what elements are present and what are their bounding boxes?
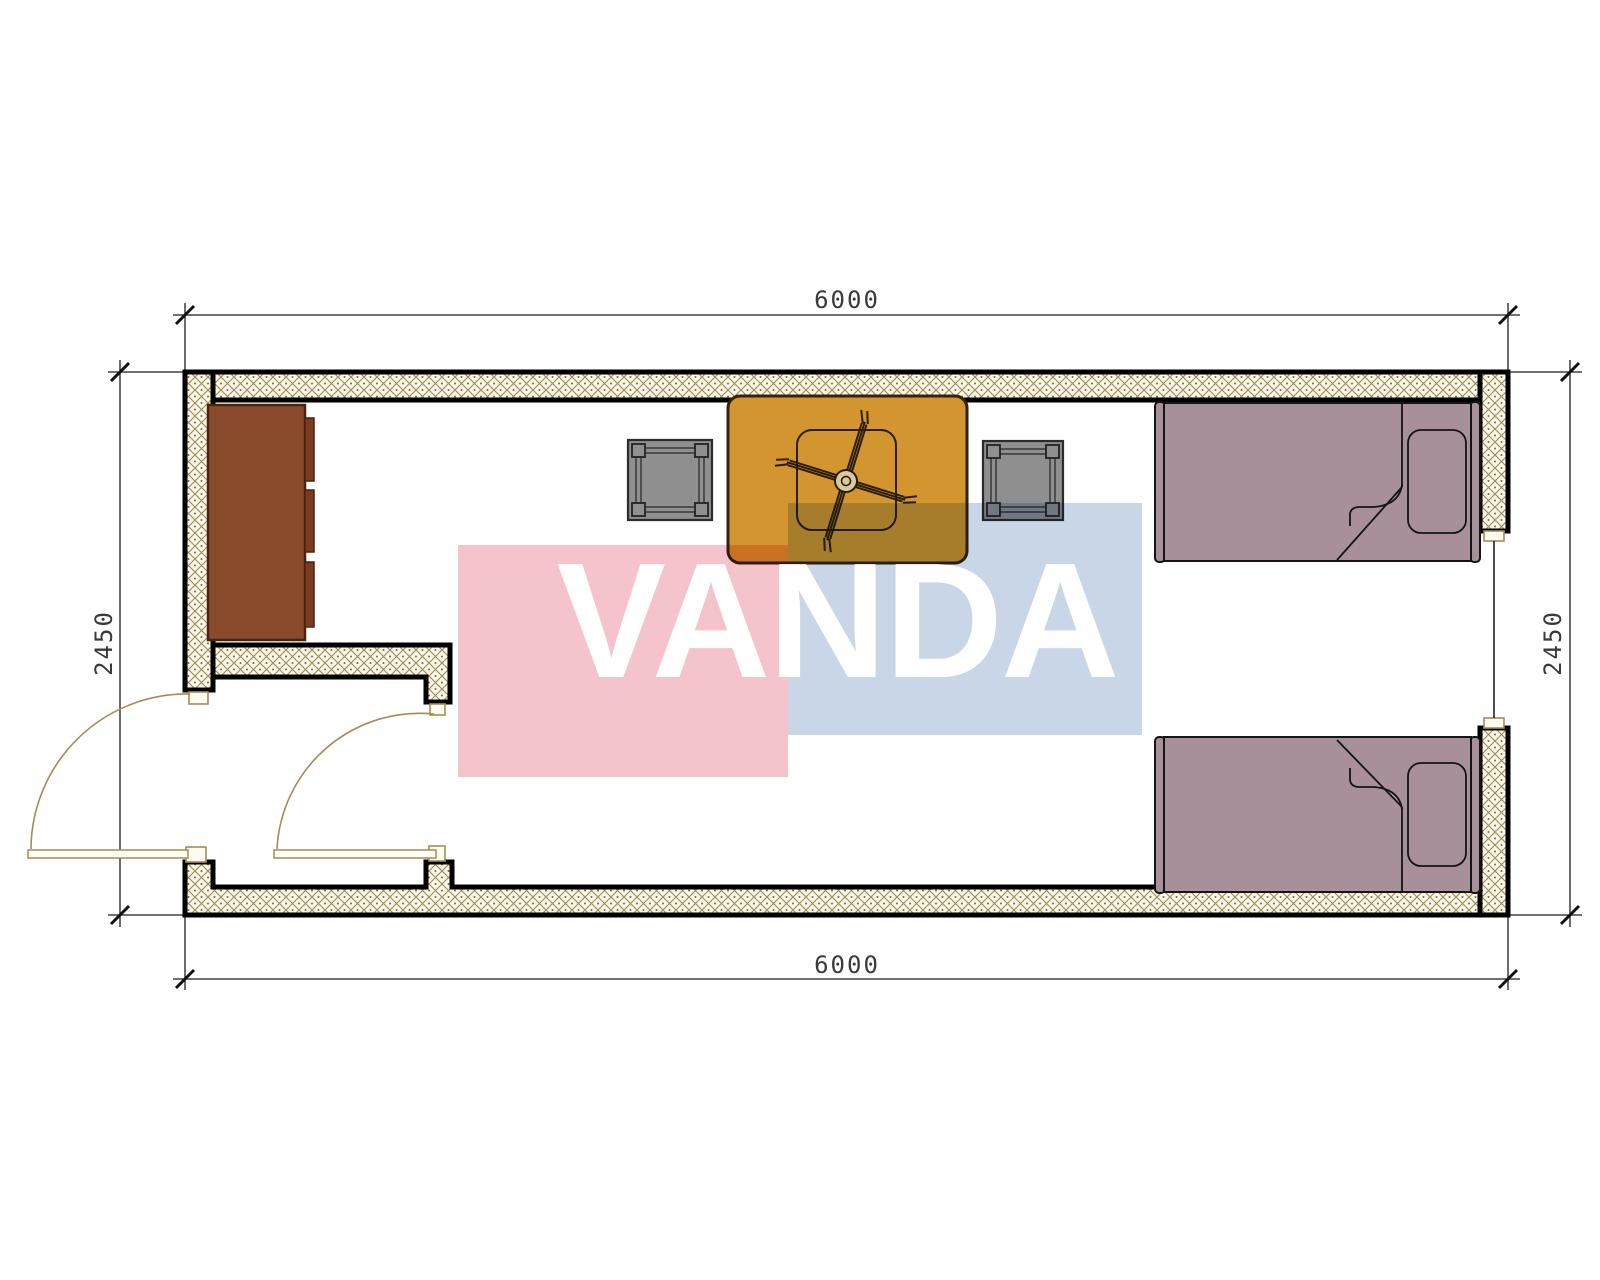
exterior-door-leaf <box>28 850 188 858</box>
stool-left <box>628 440 712 520</box>
wall-interior <box>213 645 450 702</box>
exterior-door-swing-arc <box>31 694 190 849</box>
dim-label-top: 6000 <box>814 286 880 314</box>
wardrobe-cabinet <box>208 405 314 640</box>
floor-plan-image: 6000 6000 2450 2450 <box>0 0 1600 1280</box>
door-jamb-block <box>189 692 208 704</box>
watermark: VANDA <box>458 503 1142 777</box>
floor-plan-svg: 6000 6000 2450 2450 <box>0 0 1600 1280</box>
dim-label-bottom: 6000 <box>814 951 880 979</box>
wall-right-upper <box>1480 372 1508 531</box>
interior-door-leaf <box>274 850 436 858</box>
dim-label-left: 2450 <box>90 610 118 676</box>
door-hinge-block <box>186 847 206 862</box>
watermark-text: VANDA <box>557 529 1118 712</box>
dim-label-right: 2450 <box>1539 610 1567 676</box>
wall-right-lower <box>1480 728 1508 915</box>
bed-bottom <box>1155 737 1480 893</box>
window <box>1484 531 1504 728</box>
interior-door-swing-arc <box>277 713 434 849</box>
interior-door <box>274 704 445 861</box>
bed-top <box>1155 402 1480 562</box>
exterior-door <box>28 692 208 862</box>
